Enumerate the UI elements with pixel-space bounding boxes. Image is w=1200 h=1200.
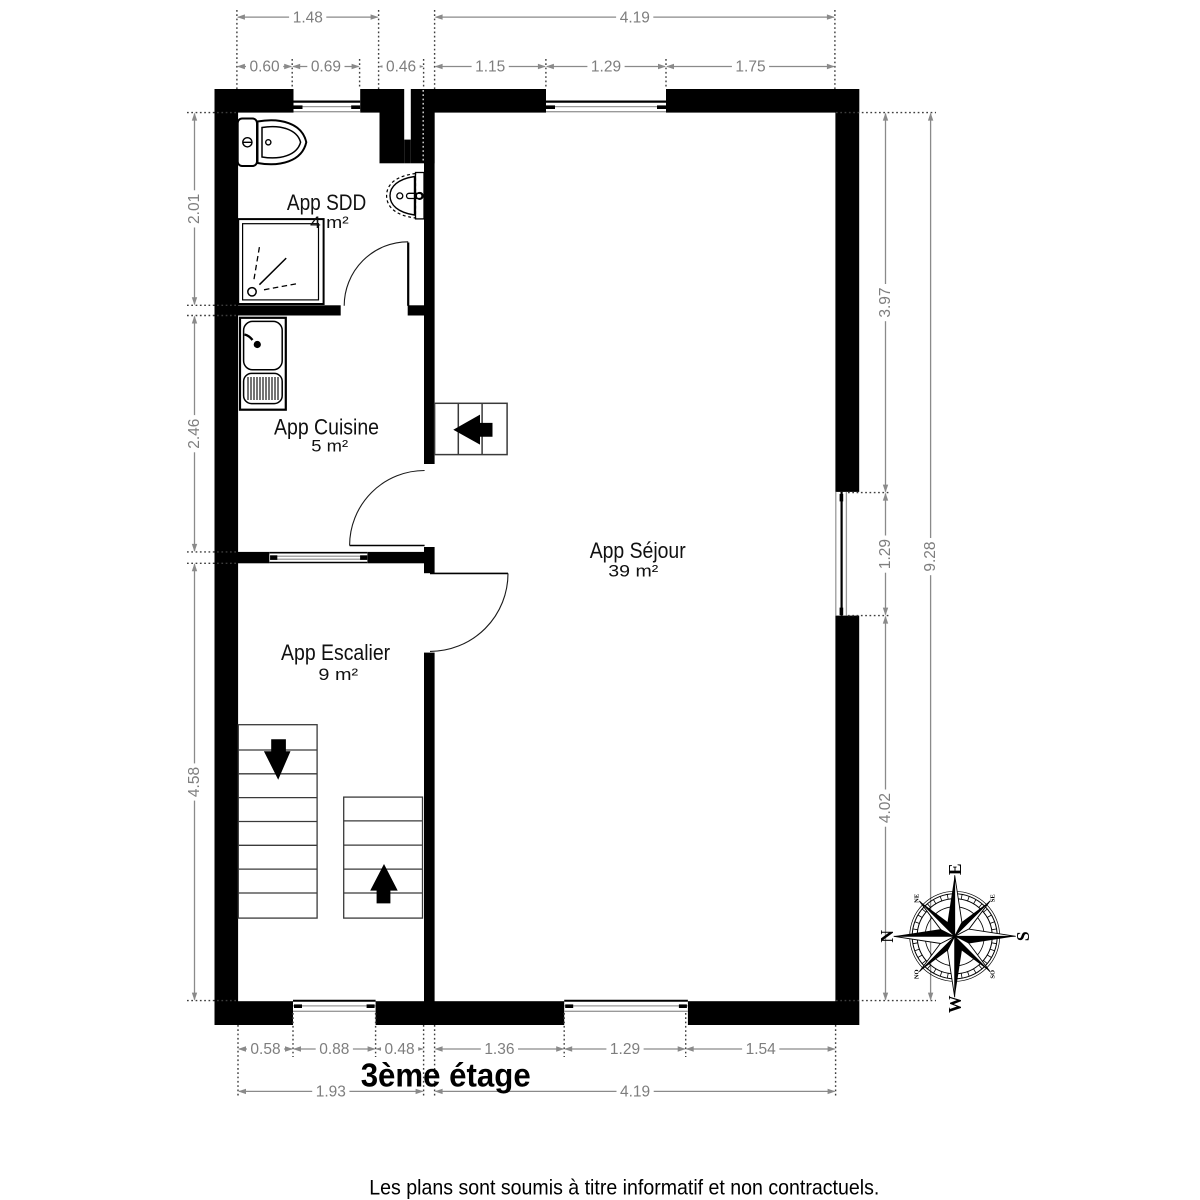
svg-text:0.69: 0.69 <box>311 59 341 76</box>
svg-text:1.93: 1.93 <box>316 1084 346 1101</box>
svg-text:1.15: 1.15 <box>475 59 505 76</box>
svg-text:1.29: 1.29 <box>591 59 621 76</box>
svg-text:4.19: 4.19 <box>620 9 650 26</box>
svg-text:1.48: 1.48 <box>293 9 323 26</box>
svg-text:1.29: 1.29 <box>610 1041 640 1058</box>
svg-text:2.01: 2.01 <box>186 194 203 224</box>
svg-text:E: E <box>945 863 965 875</box>
svg-text:Les plans sont soumis à titre: Les plans sont soumis à titre informatif… <box>369 1175 879 1199</box>
svg-text:3ème étage: 3ème étage <box>361 1057 531 1094</box>
svg-text:2.46: 2.46 <box>186 419 203 449</box>
svg-text:1.54: 1.54 <box>746 1041 777 1058</box>
svg-text:5 m²: 5 m² <box>311 437 348 456</box>
svg-text:0.46: 0.46 <box>386 59 416 76</box>
svg-text:4.58: 4.58 <box>186 767 203 797</box>
svg-text:1.29: 1.29 <box>877 539 894 569</box>
svg-text:App Séjour: App Séjour <box>590 538 686 563</box>
svg-text:SE: SE <box>990 894 997 902</box>
svg-text:4.19: 4.19 <box>620 1084 650 1101</box>
svg-text:0.58: 0.58 <box>250 1041 280 1058</box>
svg-text:App SDD: App SDD <box>287 190 366 215</box>
svg-text:NE: NE <box>914 894 921 903</box>
svg-text:App Escalier: App Escalier <box>281 640 390 665</box>
svg-text:9 m²: 9 m² <box>318 665 358 684</box>
svg-text:39 m²: 39 m² <box>608 562 658 581</box>
svg-text:9.28: 9.28 <box>922 542 939 572</box>
svg-text:3.97: 3.97 <box>877 288 894 318</box>
svg-text:4.02: 4.02 <box>877 793 894 823</box>
svg-text:0.88: 0.88 <box>319 1041 349 1058</box>
svg-text:4 m²: 4 m² <box>310 213 349 232</box>
svg-text:0.60: 0.60 <box>250 59 281 76</box>
svg-text:1.75: 1.75 <box>735 59 765 76</box>
svg-text:W: W <box>945 995 965 1013</box>
svg-text:S: S <box>1013 931 1033 941</box>
svg-text:NO: NO <box>914 969 921 979</box>
svg-text:N: N <box>877 930 897 943</box>
svg-text:SO: SO <box>990 970 997 979</box>
